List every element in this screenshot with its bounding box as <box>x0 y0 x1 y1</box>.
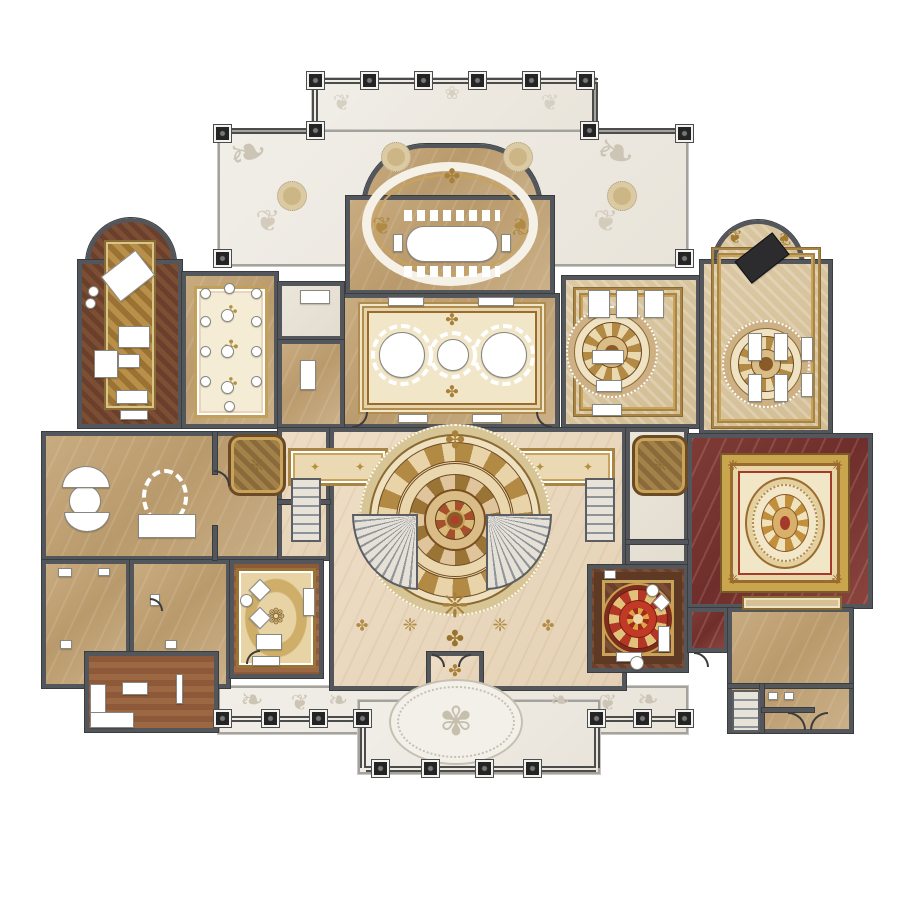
ornament-flourish-32: ✦ <box>310 461 320 473</box>
column <box>312 712 325 725</box>
ornament-flourish-12: ❧ <box>637 687 659 713</box>
ornament-flourish-5: ❦ <box>333 93 351 115</box>
music-table-2 <box>774 333 788 361</box>
column <box>264 712 277 725</box>
ornament-flourish-20: ✤ <box>542 619 555 634</box>
wall-east-corridor-divider <box>626 540 688 544</box>
terrace-circle-3-layer-1 <box>509 148 527 166</box>
colonnade-beam <box>360 720 366 768</box>
sectional-sofa-horizontal <box>90 712 134 728</box>
ornament-flourish-40: ❈ <box>831 573 843 587</box>
banquet-console-sw <box>398 414 428 423</box>
lounge-side-table-b <box>85 298 96 309</box>
study-round-table <box>240 594 253 607</box>
ornament-flourish-3: ❦ <box>593 207 618 237</box>
column <box>471 74 484 87</box>
colonnade-beam <box>592 82 598 130</box>
tea-chair-5 <box>200 346 211 357</box>
ornament-flourish-15: ❈ <box>441 589 470 623</box>
ornament-flourish-14: ✤ <box>445 428 465 452</box>
bath-fixture-2 <box>98 568 110 576</box>
column <box>636 712 649 725</box>
ornament-flourish-18: ❈ <box>492 617 507 635</box>
family-console <box>596 380 622 392</box>
music-side-b <box>801 373 813 397</box>
ornament-flourish-34: ✦ <box>535 461 545 473</box>
coffee-table <box>122 682 148 695</box>
ornament-flourish-22: ✤ <box>444 166 461 186</box>
ornament-flourish-24: ❦ <box>510 214 530 238</box>
garage-fixture-2 <box>784 692 794 700</box>
dining-chairs-north <box>404 210 500 221</box>
column <box>678 127 691 140</box>
lounge-console <box>120 410 148 420</box>
bath-fixture-4 <box>60 640 72 649</box>
ornament-flourish-6: ❦ <box>541 93 559 115</box>
ornament-flourish-8: ❦ <box>291 693 309 715</box>
mansion-floor-plan-canvas: ❧❧❦❦❀❦❦❧❦❧❧❦❧✾✤❈✤❈❈✤✤✤✤❦❦✤✤✣✣✣❈❈✦✦✦✦❁❈❈❈… <box>0 0 900 900</box>
carpet-ballroom-threshold <box>742 596 842 610</box>
study2-console <box>658 626 670 652</box>
family-sofa-n <box>616 290 638 318</box>
column <box>417 74 430 87</box>
ornament-flourish-10: ❧ <box>550 688 570 712</box>
store-shelf <box>300 290 330 304</box>
bath-fixture-1 <box>58 568 72 577</box>
column <box>526 762 539 775</box>
service-stair-east <box>585 478 615 542</box>
rotunda-medallion-layer-8 <box>451 516 459 524</box>
column <box>579 74 592 87</box>
red-round-carpet-layer-4 <box>633 614 643 624</box>
tea-chair-7 <box>200 376 211 387</box>
ornament-flourish-9: ❧ <box>328 688 348 712</box>
banquet-console-nw <box>388 297 424 306</box>
ornament-flourish-26: ✤ <box>445 384 458 400</box>
dining-chairs-south <box>404 266 500 277</box>
ornament-flourish-4: ❀ <box>444 85 459 103</box>
dining-end-chair-east <box>501 234 511 252</box>
tea-table-c <box>221 381 234 394</box>
ornament-flourish-35: ✦ <box>583 461 593 473</box>
column <box>424 762 437 775</box>
ornament-flourish-19: ✤ <box>356 619 369 634</box>
ornament-flourish-33: ✦ <box>355 461 365 473</box>
colonnade-beam <box>222 716 366 722</box>
lounge-sofa-b <box>94 350 118 378</box>
column <box>525 74 538 87</box>
lounge-side-table-a <box>88 286 99 297</box>
family-sofa-center <box>592 350 624 364</box>
ornament-flourish-39: ❈ <box>727 573 739 587</box>
tea-table-b <box>221 345 234 358</box>
lounge-sofa-c <box>116 390 148 404</box>
ornament-flourish-13: ✾ <box>439 702 473 742</box>
tea-chair-6 <box>251 346 262 357</box>
ornament-flourish-2: ❦ <box>255 207 280 237</box>
lounge-sofa-a <box>118 326 150 348</box>
banquet-table-east <box>481 332 527 378</box>
column <box>678 252 691 265</box>
terrace-circle-2-layer-1 <box>387 148 405 166</box>
column <box>374 762 387 775</box>
study2-table <box>630 656 644 670</box>
family-sofa-ne <box>644 290 664 318</box>
column <box>216 712 229 725</box>
door-swing <box>694 652 709 667</box>
ornament-flourish-17: ❈ <box>402 617 417 635</box>
ornament-flourish-41: ❦ <box>727 229 742 247</box>
colonnade-beam <box>312 82 318 130</box>
banquet-table-center <box>437 339 469 371</box>
colonnade-beam <box>312 78 598 84</box>
garage-stair <box>732 690 760 732</box>
column <box>583 124 596 137</box>
ornament-flourish-23: ❦ <box>372 214 392 238</box>
ornament-flourish-7: ❧ <box>240 686 263 714</box>
study2-round-table <box>646 584 659 597</box>
ballroom-center-medallion-layer-4 <box>780 516 790 530</box>
column <box>478 762 491 775</box>
tea-chair-2 <box>251 288 262 299</box>
tea-chair-1 <box>200 288 211 299</box>
colonnade-beam <box>594 720 600 768</box>
store-cabinet <box>300 360 316 390</box>
column <box>590 712 603 725</box>
dining-end-chair-west <box>393 234 403 252</box>
ornament-flourish-25: ✤ <box>445 312 458 328</box>
study-console <box>303 588 315 616</box>
media-console <box>176 674 183 704</box>
music-table-3 <box>748 374 762 402</box>
banquet-table-west <box>379 332 425 378</box>
ornament-flourish-16: ✤ <box>446 629 464 651</box>
column <box>216 127 229 140</box>
banquet-console-se <box>472 414 502 423</box>
ornament-flourish-30: ❈ <box>249 455 266 475</box>
column <box>309 124 322 137</box>
tea-chair-4 <box>251 316 262 327</box>
tea-chair-8 <box>251 376 262 387</box>
lounge-seat <box>118 354 140 368</box>
tea-table-a <box>221 309 234 322</box>
service-stair-west <box>291 478 321 542</box>
tea-chair-9 <box>224 283 235 294</box>
kitchen-island <box>138 514 196 538</box>
colonnade-beam <box>586 128 686 134</box>
bath-fixture-5 <box>165 640 177 649</box>
banquet-console-ne <box>478 297 514 306</box>
colonnade-beam <box>222 128 318 134</box>
tea-chair-3 <box>200 316 211 327</box>
ornament-flourish-31: ❈ <box>652 455 669 475</box>
family-sofa-nw <box>588 290 610 318</box>
column <box>356 712 369 725</box>
wall-living-divider-a <box>213 432 217 474</box>
study2-cabinet <box>604 570 616 579</box>
ornament-flourish-38: ❈ <box>831 459 843 473</box>
garage-fixture-1 <box>768 692 778 700</box>
music-side-a <box>801 337 813 361</box>
music-table-4 <box>774 374 788 402</box>
tea-chair-10 <box>224 401 235 412</box>
column <box>216 252 229 265</box>
music-table-1 <box>748 333 762 361</box>
wall-garage-partition-h <box>728 684 853 688</box>
study-desk <box>256 634 282 650</box>
room-red-annex <box>688 608 728 652</box>
ornament-flourish-37: ❈ <box>727 459 739 473</box>
column <box>363 74 376 87</box>
column <box>678 712 691 725</box>
family-bench <box>592 404 622 416</box>
wall-living-divider-b <box>213 526 217 560</box>
terrace-circle-1-layer-1 <box>283 187 301 205</box>
dining-table <box>406 226 498 262</box>
terrace-circle-4-layer-1 <box>613 187 631 205</box>
column <box>309 74 322 87</box>
